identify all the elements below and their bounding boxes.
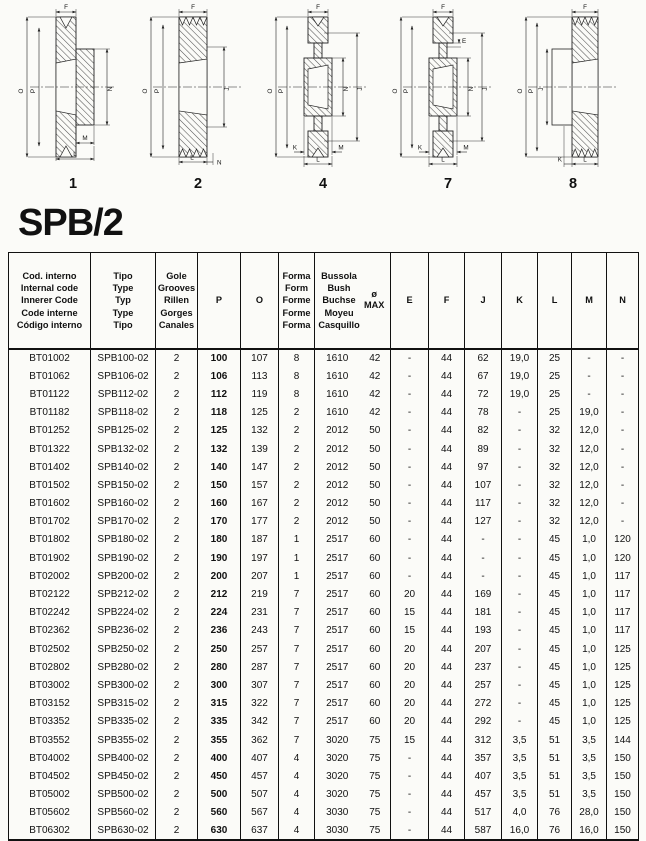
table-cell: SPB150-02 [91, 476, 156, 494]
col-header-code: Cod. interno Internal code Innerer Code … [9, 253, 91, 349]
table-cell: BT01252 [9, 422, 91, 440]
table-cell: - [502, 585, 538, 603]
table-cell: 140 [198, 458, 241, 476]
table-cell: BT01322 [9, 440, 91, 458]
table-cell: 517 [465, 804, 502, 822]
table-cell: 44 [429, 822, 465, 840]
table-cell: 3030 [315, 804, 360, 822]
table-cell: 180 [198, 531, 241, 549]
table-cell: SPB300-02 [91, 676, 156, 694]
table-cell: 170 [198, 513, 241, 531]
table-cell: 44 [429, 476, 465, 494]
table-cell: 2 [156, 494, 198, 512]
col-header-type: Tipo Type Typ Type Tipo [91, 253, 156, 349]
table-cell: 3020 [315, 749, 360, 767]
table-cell: SPB118-02 [91, 404, 156, 422]
table-cell: 2 [279, 494, 315, 512]
table-cell: 357 [465, 749, 502, 767]
table-cell: 82 [465, 422, 502, 440]
col-header-l: L [538, 253, 572, 349]
table-cell: 2012 [315, 440, 360, 458]
table-cell: BT02362 [9, 622, 91, 640]
table-cell: - [572, 385, 607, 403]
diagram-number: 8 [569, 176, 577, 192]
table-cell: 119 [241, 385, 279, 403]
pulley-diagram-8: F O P J K L 8 [514, 3, 632, 192]
table-cell: 2517 [315, 658, 360, 676]
table-row: BT03552SPB355-022355362730207515443123,5… [9, 731, 639, 749]
pulley-type-8-drawing-icon: F O P J K L [514, 3, 632, 175]
dim-letter: E [462, 38, 466, 45]
table-cell: - [391, 822, 429, 840]
table-cell: 4 [279, 804, 315, 822]
dim-letter: P [528, 89, 535, 93]
table-cell: 25 [538, 404, 572, 422]
table-cell: SPB100-02 [91, 349, 156, 367]
table-cell: SPB315-02 [91, 695, 156, 713]
table-cell: 177 [241, 513, 279, 531]
table-cell: BT02502 [9, 640, 91, 658]
table-cell: 3020 [315, 785, 360, 803]
table-cell: 44 [429, 804, 465, 822]
col-header-form: Forma Form Forme Forme Forma [279, 253, 315, 349]
table-cell: 60 [360, 658, 391, 676]
table-cell: 507 [241, 785, 279, 803]
table-cell: 567 [241, 804, 279, 822]
table-cell: - [465, 531, 502, 549]
table-cell: SPB500-02 [91, 785, 156, 803]
dim-letter: J [224, 87, 231, 90]
table-row: BT04002SPB400-0224004074302075-443573,55… [9, 749, 639, 767]
table-cell: 107 [465, 476, 502, 494]
table-cell: 280 [198, 658, 241, 676]
table-cell: 1,0 [572, 549, 607, 567]
table-cell: SPB170-02 [91, 513, 156, 531]
table-cell: SPB180-02 [91, 531, 156, 549]
table-cell: 75 [360, 804, 391, 822]
table-cell: 75 [360, 731, 391, 749]
table-cell: BT01902 [9, 549, 91, 567]
table-cell: 44 [429, 422, 465, 440]
dim-letter: K [418, 145, 423, 152]
table-cell: 12,0 [572, 513, 607, 531]
table-cell: - [391, 567, 429, 585]
table-cell: 2517 [315, 713, 360, 731]
table-cell: SPB200-02 [91, 567, 156, 585]
table-cell: BT04502 [9, 767, 91, 785]
table-cell: 45 [538, 640, 572, 658]
dim-letter: M [82, 135, 87, 142]
table-cell: SPB560-02 [91, 804, 156, 822]
table-cell: 67 [465, 367, 502, 385]
table-cell: BT01702 [9, 513, 91, 531]
table-cell: - [391, 440, 429, 458]
table-cell: 44 [429, 513, 465, 531]
bush-header-names: Bussola Bush Buchse Moyeu Casquillo [318, 270, 359, 331]
table-cell: 207 [241, 567, 279, 585]
table-cell: 237 [465, 658, 502, 676]
table-cell: - [502, 513, 538, 531]
table-cell: - [607, 422, 639, 440]
table-cell: 44 [429, 622, 465, 640]
table-cell: 236 [198, 622, 241, 640]
table-row: BT03002SPB300-02230030772517602044257-45… [9, 676, 639, 694]
table-cell: 44 [429, 785, 465, 803]
table-cell: 51 [538, 749, 572, 767]
table-cell: 335 [198, 713, 241, 731]
table-cell: 1,0 [572, 585, 607, 603]
table-cell: - [607, 404, 639, 422]
table-cell: - [391, 404, 429, 422]
table-cell: 45 [538, 567, 572, 585]
table-row: BT01322SPB132-0221321392201250-4489-3212… [9, 440, 639, 458]
table-cell: 2 [279, 458, 315, 476]
table-cell: BT01122 [9, 385, 91, 403]
table-cell: 2 [156, 367, 198, 385]
table-cell: 15 [391, 731, 429, 749]
dim-letter: K [558, 157, 563, 164]
table-cell: - [391, 513, 429, 531]
dim-letter: L [441, 157, 445, 164]
table-cell: 2 [156, 749, 198, 767]
table-cell: 1,0 [572, 658, 607, 676]
table-cell: 8 [279, 349, 315, 367]
table-cell: 45 [538, 658, 572, 676]
table-cell: SPB112-02 [91, 385, 156, 403]
pulley-type-1-drawing-icon: F O P N M L [14, 3, 132, 175]
table-cell: 125 [198, 422, 241, 440]
table-cell: - [502, 531, 538, 549]
table-cell: SPB106-02 [91, 367, 156, 385]
table-cell: 2 [156, 567, 198, 585]
table-cell: - [391, 549, 429, 567]
table-cell: 219 [241, 585, 279, 603]
table-cell: 44 [429, 567, 465, 585]
table-cell: - [502, 695, 538, 713]
table-row: BT01402SPB140-0221401472201250-4497-3212… [9, 458, 639, 476]
table-cell: SPB212-02 [91, 585, 156, 603]
table-cell: 8 [279, 385, 315, 403]
pulley-type-7-drawing-icon: F E O P N J K M [389, 3, 507, 175]
table-cell: 75 [360, 749, 391, 767]
table-row: BT03152SPB315-02231532272517602044272-45… [9, 695, 639, 713]
table-cell: 150 [198, 476, 241, 494]
table-cell: 7 [279, 676, 315, 694]
table-cell: 2517 [315, 531, 360, 549]
table-cell: 3,5 [572, 767, 607, 785]
pulley-type-4-drawing-icon: F O P N J K M L [264, 3, 382, 175]
table-cell: 42 [360, 349, 391, 367]
table-cell: 2 [156, 349, 198, 367]
table-cell: - [502, 622, 538, 640]
table-cell: 60 [360, 676, 391, 694]
table-cell: 12,0 [572, 476, 607, 494]
table-cell: SPB132-02 [91, 440, 156, 458]
table-cell: 117 [465, 494, 502, 512]
table-cell: 287 [241, 658, 279, 676]
table-body: BT01002SPB100-0221001078161042-446219,02… [9, 349, 639, 840]
table-cell: 75 [360, 767, 391, 785]
dim-letter: N [217, 160, 222, 167]
table-cell: 51 [538, 767, 572, 785]
table-cell: 32 [538, 513, 572, 531]
table-cell: BT01402 [9, 458, 91, 476]
table-cell: - [391, 458, 429, 476]
table-cell: 45 [538, 531, 572, 549]
table-cell: 150 [607, 822, 639, 840]
table-row: BT03352SPB335-02233534272517602044292-45… [9, 713, 639, 731]
bush-header-max: ø MAX [362, 289, 387, 312]
table-cell: 187 [241, 531, 279, 549]
table-cell: 60 [360, 695, 391, 713]
table-cell: 150 [607, 785, 639, 803]
table-cell: 2 [156, 767, 198, 785]
table-row: BT01062SPB106-0221061138161042-446719,02… [9, 367, 639, 385]
table-cell: 1,0 [572, 640, 607, 658]
table-row: BT02002SPB200-0222002071251760-44--451,0… [9, 567, 639, 585]
table-cell: 2517 [315, 676, 360, 694]
table-cell: 457 [465, 785, 502, 803]
table-cell: 1 [279, 531, 315, 549]
table-cell: 50 [360, 513, 391, 531]
table-cell: 400 [198, 749, 241, 767]
table-cell: 3,5 [572, 731, 607, 749]
col-header-f: F [429, 253, 465, 349]
table-cell: 2517 [315, 567, 360, 585]
table-cell: 7 [279, 622, 315, 640]
table-cell: 560 [198, 804, 241, 822]
table-cell: 44 [429, 440, 465, 458]
table-cell: 127 [465, 513, 502, 531]
table-cell: 50 [360, 422, 391, 440]
table-cell: 7 [279, 731, 315, 749]
table-cell: 20 [391, 695, 429, 713]
table-cell: 16,0 [572, 822, 607, 840]
table-row: BT02362SPB236-02223624372517601544193-45… [9, 622, 639, 640]
table-cell: 1,0 [572, 713, 607, 731]
table-cell: 44 [429, 767, 465, 785]
table-cell: BT03552 [9, 731, 91, 749]
table-cell: 20 [391, 676, 429, 694]
table-cell: 3,5 [502, 785, 538, 803]
table-cell: 2 [156, 658, 198, 676]
table-cell: 19,0 [502, 349, 538, 367]
table-cell: 169 [465, 585, 502, 603]
table-cell: 12,0 [572, 494, 607, 512]
table-cell: - [607, 476, 639, 494]
table-row: BT02502SPB250-02225025772517602044207-45… [9, 640, 639, 658]
table-cell: 3020 [315, 767, 360, 785]
catalog-page: F O P N M L 1 [0, 0, 646, 837]
table-cell: 25 [538, 367, 572, 385]
table-cell: - [607, 367, 639, 385]
table-cell: 44 [429, 695, 465, 713]
pulley-type-2-drawing-icon: F O P J L N [139, 3, 257, 175]
table-cell: 457 [241, 767, 279, 785]
table-cell: 1,0 [572, 676, 607, 694]
dim-letter: M [463, 145, 468, 152]
table-cell: SPB355-02 [91, 731, 156, 749]
table-cell: - [502, 494, 538, 512]
table-cell: 193 [465, 622, 502, 640]
table-cell: 32 [538, 476, 572, 494]
col-header-n: N [607, 253, 639, 349]
table-cell: 107 [241, 349, 279, 367]
table-cell: 50 [360, 440, 391, 458]
table-cell: 117 [607, 585, 639, 603]
table-cell: 60 [360, 585, 391, 603]
table-cell: 224 [198, 604, 241, 622]
table-cell: 8 [279, 367, 315, 385]
table-cell: 125 [241, 404, 279, 422]
dim-letter: F [441, 4, 445, 11]
table-row: BT01902SPB190-0221901971251760-44--451,0… [9, 549, 639, 567]
table-cell: 106 [198, 367, 241, 385]
table-cell: 44 [429, 658, 465, 676]
table-cell: 4 [279, 749, 315, 767]
dim-letter: J [357, 87, 364, 90]
dim-letter: O [517, 88, 524, 93]
table-cell: BT01802 [9, 531, 91, 549]
table-cell: 16,0 [502, 822, 538, 840]
table-cell: 15 [391, 604, 429, 622]
table-cell: 2 [156, 385, 198, 403]
table-cell: 2 [156, 804, 198, 822]
table-cell: 2012 [315, 513, 360, 531]
table-cell: 250 [198, 640, 241, 658]
table-cell: 132 [241, 422, 279, 440]
table-cell: 76 [538, 804, 572, 822]
table-cell: 45 [538, 585, 572, 603]
table-cell: BT02242 [9, 604, 91, 622]
table-cell: 150 [607, 767, 639, 785]
table-cell: - [572, 367, 607, 385]
table-cell: 1,0 [572, 695, 607, 713]
table-cell: 257 [465, 676, 502, 694]
table-cell: 60 [360, 531, 391, 549]
table-cell: 44 [429, 349, 465, 367]
table-cell: BT02122 [9, 585, 91, 603]
table-cell: SPB236-02 [91, 622, 156, 640]
table-cell: 312 [465, 731, 502, 749]
table-cell: 212 [198, 585, 241, 603]
table-row: BT01502SPB150-0221501572201250-44107-321… [9, 476, 639, 494]
dim-letter: F [191, 4, 195, 11]
table-cell: 2012 [315, 494, 360, 512]
table-cell: 500 [198, 785, 241, 803]
table-row: BT01182SPB118-0221181252161042-4478-2519… [9, 404, 639, 422]
table-cell: SPB280-02 [91, 658, 156, 676]
table-cell: - [391, 767, 429, 785]
table-cell: 125 [607, 713, 639, 731]
table-cell: - [607, 349, 639, 367]
table-cell: - [607, 494, 639, 512]
table-cell: 120 [607, 531, 639, 549]
table-cell: 3,5 [572, 749, 607, 767]
table-cell: 407 [241, 749, 279, 767]
table-cell: - [607, 385, 639, 403]
pulley-diagram-7: F E O P N J K M [389, 3, 507, 192]
table-cell: 45 [538, 695, 572, 713]
table-cell: 60 [360, 640, 391, 658]
table-cell: 2 [156, 458, 198, 476]
diagram-number: 4 [319, 176, 327, 192]
table-cell: 160 [198, 494, 241, 512]
table-cell: 78 [465, 404, 502, 422]
table-cell: 2 [156, 404, 198, 422]
table-cell: 355 [198, 731, 241, 749]
table-cell: 100 [198, 349, 241, 367]
table-cell: 4 [279, 767, 315, 785]
table-cell: 587 [465, 822, 502, 840]
table-cell: 42 [360, 385, 391, 403]
table-cell: 60 [360, 713, 391, 731]
table-cell: 44 [429, 531, 465, 549]
table-row: BT02122SPB212-02221221972517602044169-45… [9, 585, 639, 603]
table-cell: 44 [429, 404, 465, 422]
table-cell: BT05602 [9, 804, 91, 822]
table-cell: - [391, 349, 429, 367]
table-cell: 2 [279, 476, 315, 494]
table-cell: 407 [465, 767, 502, 785]
table-cell: 32 [538, 458, 572, 476]
table-cell: 2517 [315, 585, 360, 603]
table-cell: 97 [465, 458, 502, 476]
table-cell: BT03002 [9, 676, 91, 694]
table-cell: 20 [391, 658, 429, 676]
spec-table: Cod. interno Internal code Innerer Code … [8, 252, 639, 841]
table-cell: 3030 [315, 822, 360, 840]
col-header-p: P [198, 253, 241, 349]
table-cell: 157 [241, 476, 279, 494]
table-cell: 20 [391, 585, 429, 603]
table-cell: 50 [360, 458, 391, 476]
pulley-diagrams-row: F O P N M L 1 [0, 0, 646, 192]
table-cell: - [607, 458, 639, 476]
table-cell: 3,5 [502, 767, 538, 785]
table-cell: SPB160-02 [91, 494, 156, 512]
table-cell: 32 [538, 440, 572, 458]
table-cell: 2517 [315, 549, 360, 567]
table-cell: 2517 [315, 622, 360, 640]
table-cell: 19,0 [572, 404, 607, 422]
table-cell: 1,0 [572, 531, 607, 549]
table-cell: 7 [279, 604, 315, 622]
table-cell: 292 [465, 713, 502, 731]
table-cell: 20 [391, 713, 429, 731]
col-header-grooves: Gole Grooves Rillen Gorges Canales [156, 253, 198, 349]
table-cell: 1610 [315, 349, 360, 367]
table-cell: 342 [241, 713, 279, 731]
table-cell: 181 [465, 604, 502, 622]
table-cell: 7 [279, 585, 315, 603]
table-cell: 45 [538, 622, 572, 640]
table-cell: BT06302 [9, 822, 91, 840]
table-cell: 300 [198, 676, 241, 694]
table-cell: 2 [156, 713, 198, 731]
table-cell: 44 [429, 676, 465, 694]
table-cell: 44 [429, 713, 465, 731]
table-cell: 231 [241, 604, 279, 622]
table-row: BT01122SPB112-0221121198161042-447219,02… [9, 385, 639, 403]
table-cell: SPB450-02 [91, 767, 156, 785]
table-cell: - [502, 404, 538, 422]
table-cell: 3020 [315, 731, 360, 749]
table-cell: 45 [538, 549, 572, 567]
table-cell: 4 [279, 822, 315, 840]
col-header-bush: Bussola Bush Buchse Moyeu Casquillo ø MA… [315, 253, 391, 349]
table-cell: 139 [241, 440, 279, 458]
